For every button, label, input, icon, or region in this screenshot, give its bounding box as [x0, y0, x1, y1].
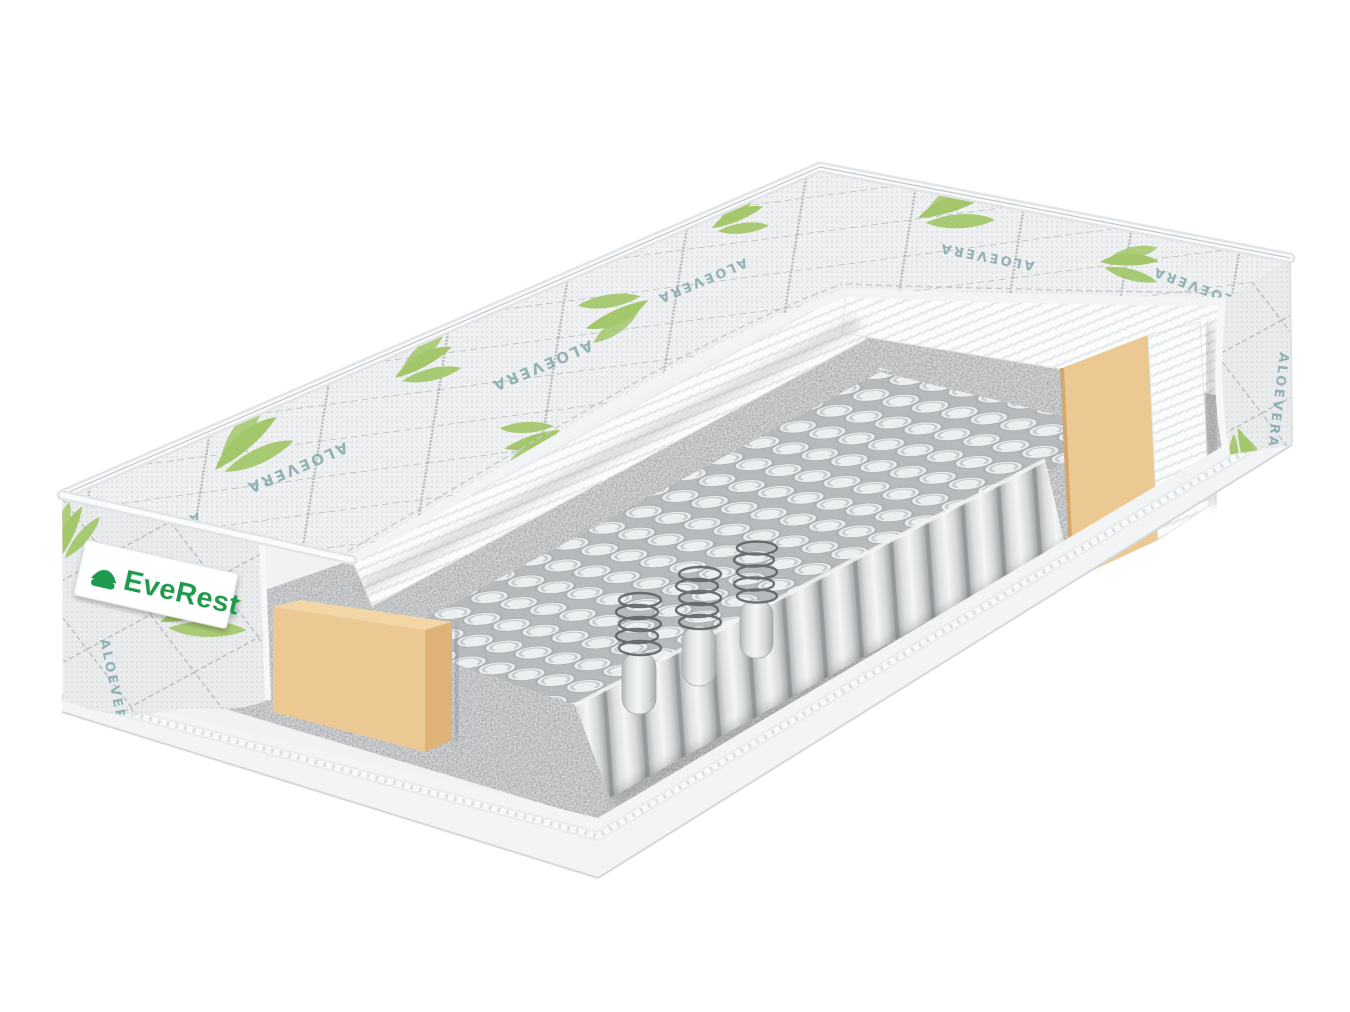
block-shadow [455, 626, 458, 742]
mattress-cutaway-illustration: ALOEVERA ALOEVERA ALOEVERA ALOEVERA ALOE… [0, 0, 1350, 1012]
product-image: ALOEVERA ALOEVERA ALOEVERA ALOEVERA ALOE… [0, 0, 1350, 1012]
quilted-top-cover-right: ALOEVERA ALOEVERA [820, 167, 1290, 310]
